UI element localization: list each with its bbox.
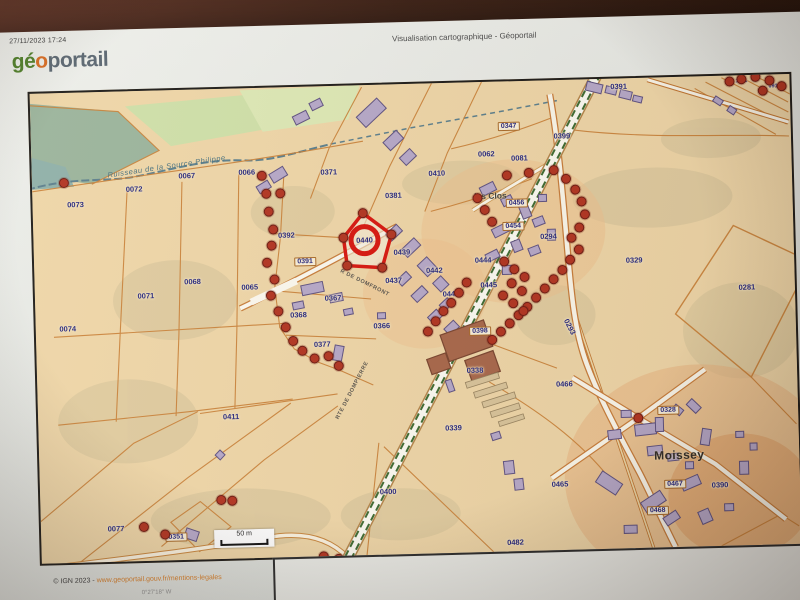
boundary-marker-dot xyxy=(262,258,272,268)
parcel-label-0338: 0338 xyxy=(467,366,484,375)
parcel-label-0081: 0081 xyxy=(511,153,528,162)
boundary-marker-dot xyxy=(517,286,527,296)
parcel-label-0392: 0392 xyxy=(278,230,295,239)
parcel-label-0339: 0339 xyxy=(445,423,462,432)
boundary-marker-dot xyxy=(565,255,575,265)
boundary-marker-dot xyxy=(509,264,519,274)
boundary-marker-dot xyxy=(480,205,490,215)
boundary-marker-dot xyxy=(508,298,518,308)
boundary-marker-dot xyxy=(269,274,279,284)
page-title: Visualisation cartographique - Géoportai… xyxy=(392,31,537,44)
boundary-marker-dot xyxy=(502,170,512,180)
boundary-marker-dot xyxy=(438,306,448,316)
logo-geo: géo xyxy=(11,49,47,73)
boundary-marker-dot xyxy=(423,326,433,336)
parcel-label-0367: 0367 xyxy=(325,293,342,302)
boundary-marker-dot xyxy=(281,322,291,332)
parcel-label-0377: 0377 xyxy=(314,340,331,349)
parcel-label-0391: 0391 xyxy=(610,82,627,91)
boundary-marker-dot xyxy=(777,81,787,91)
boundary-marker-dot xyxy=(257,171,267,181)
parcel-label-0371: 0371 xyxy=(320,167,337,176)
parcel-label-0467: 0467 xyxy=(664,479,686,489)
cadastral-map: 0073007200670066007100680065007400770351… xyxy=(28,72,800,566)
parcel-label-0067: 0067 xyxy=(178,171,195,180)
scale-bar-line xyxy=(220,539,268,546)
scale-bar: 50 m xyxy=(214,529,274,549)
scale-label: 50 m xyxy=(214,530,274,539)
boundary-marker-dot xyxy=(487,217,497,227)
boundary-marker-dot xyxy=(576,196,586,206)
parcel-label-0410: 0410 xyxy=(428,169,445,178)
parcel-label-0390: 0390 xyxy=(712,480,729,489)
boundary-marker-dot xyxy=(724,76,734,86)
boundary-marker-dot xyxy=(549,165,559,175)
map-label-layer: 0073007200670066007100680065007400770351… xyxy=(30,74,800,564)
boundary-marker-dot xyxy=(548,274,558,284)
parcel-label-0066: 0066 xyxy=(238,167,255,176)
parcel-label-0482: 0482 xyxy=(507,538,524,547)
boundary-marker-dot xyxy=(505,318,515,328)
geoportail-logo: géoportail xyxy=(11,48,108,75)
boundary-marker-dot xyxy=(275,188,285,198)
parcel-label-0347: 0347 xyxy=(498,122,520,132)
print-datetime: 27/11/2023 17:24 xyxy=(9,37,66,45)
boundary-marker-dot xyxy=(498,290,508,300)
boundary-marker-dot xyxy=(561,174,571,184)
boundary-marker-dot xyxy=(59,178,69,188)
parcel-label-0465: 0465 xyxy=(552,479,569,488)
boundary-marker-dot xyxy=(519,272,529,282)
parcel-label-0071: 0071 xyxy=(137,291,154,300)
parcel-label-0293: 0293 xyxy=(562,317,578,336)
boundary-marker-dot xyxy=(472,193,482,203)
boundary-marker-dot xyxy=(342,260,352,270)
parcel-label-0468: 0468 xyxy=(647,506,669,516)
boundary-marker-dot xyxy=(574,222,584,232)
boundary-marker-dot xyxy=(266,290,276,300)
boundary-marker-dot xyxy=(496,326,506,336)
boundary-marker-dot xyxy=(216,495,226,505)
street-label: Ruisseau de la Source Philippe xyxy=(107,153,226,180)
parcel-label-0329: 0329 xyxy=(626,255,643,264)
boundary-marker-dot xyxy=(431,316,441,326)
parcel-label-0437: 0437 xyxy=(385,276,402,285)
street-label: R DE DOMFRONT xyxy=(339,268,390,298)
parcel-label-0456: 0456 xyxy=(506,198,528,208)
boundary-marker-dot xyxy=(540,283,550,293)
legal-link: www.geoportail.gouv.fr/mentions-legales xyxy=(97,574,222,584)
boundary-marker-dot xyxy=(334,361,344,371)
boundary-marker-dot xyxy=(758,86,768,96)
parcel-label-0466: 0466 xyxy=(556,379,573,388)
parcel-label-0068: 0068 xyxy=(184,277,201,286)
boundary-marker-dot xyxy=(518,306,528,316)
parcel-label-0368: 0368 xyxy=(290,310,307,319)
boundary-marker-dot xyxy=(261,189,271,199)
boundary-marker-dot xyxy=(446,298,456,308)
copyright-line: © IGN 2023 - www.geoportail.gouv.fr/ment… xyxy=(53,574,222,585)
boundary-marker-dot xyxy=(268,224,278,234)
parcel-label-0400: 0400 xyxy=(380,487,397,496)
parcel-label-0077: 0077 xyxy=(108,524,125,533)
parcel-label-0399: 0399 xyxy=(553,131,570,140)
place-label-moissey: Moissey xyxy=(654,447,705,462)
boundary-marker-dot xyxy=(377,263,387,273)
logo-portail: portail xyxy=(47,48,108,73)
parcel-label-0454: 0454 xyxy=(502,221,524,231)
parcel-label-0366: 0366 xyxy=(373,321,390,330)
boundary-marker-dot xyxy=(264,207,274,217)
parcel-label-0065: 0065 xyxy=(241,282,258,291)
parcel-label-0391: 0391 xyxy=(294,257,316,267)
parcel-label-0444: 0444 xyxy=(475,255,492,264)
boundary-marker-dot xyxy=(524,168,534,178)
parcel-label-0074: 0074 xyxy=(59,324,76,333)
boundary-marker-dot xyxy=(570,184,580,194)
coords-partial: 0°27'18" W xyxy=(142,589,172,596)
boundary-marker-dot xyxy=(507,278,517,288)
parcel-label-0439: 0439 xyxy=(393,247,410,256)
boundary-marker-dot xyxy=(338,233,348,243)
boundary-marker-dot xyxy=(323,351,333,361)
parcel-label-0398: 0398 xyxy=(469,326,491,336)
boundary-marker-dot xyxy=(580,209,590,219)
boundary-marker-dot xyxy=(557,265,567,275)
boundary-marker-dot xyxy=(531,293,541,303)
parcel-label-0072: 0072 xyxy=(126,184,143,193)
boundary-marker-dot xyxy=(309,353,319,363)
parcel-label-0445: 0445 xyxy=(480,280,497,289)
boundary-marker-dot xyxy=(227,496,237,506)
parcel-label-0073: 0073 xyxy=(67,200,84,209)
boundary-marker-dot xyxy=(566,233,576,243)
parcel-label-0328: 0328 xyxy=(657,405,679,415)
boundary-marker-dot xyxy=(358,208,368,218)
parcel-label-0440: 0440 xyxy=(356,235,373,244)
boundary-marker-dot xyxy=(633,413,643,423)
photo-of-printed-map: 27/11/2023 17:24 Visualisation cartograp… xyxy=(0,0,800,600)
boundary-marker-dot xyxy=(454,288,464,298)
boundary-marker-dot xyxy=(288,336,298,346)
boundary-marker-dot xyxy=(487,335,497,345)
parcel-label-0381: 0381 xyxy=(385,191,402,200)
boundary-marker-dot xyxy=(267,240,277,250)
boundary-marker-dot xyxy=(273,306,283,316)
boundary-marker-dot xyxy=(574,244,584,254)
boundary-marker-dot xyxy=(297,346,307,356)
boundary-marker-dot xyxy=(139,522,149,532)
parcel-label-0062: 0062 xyxy=(478,149,495,158)
parcel-label-0281: 0281 xyxy=(738,282,755,291)
parcel-label-0442: 0442 xyxy=(426,266,443,275)
boundary-marker-dot xyxy=(499,256,509,266)
boundary-marker-dot xyxy=(386,229,396,239)
parcel-label-0411: 0411 xyxy=(223,412,240,421)
boundary-marker-dot xyxy=(462,277,472,287)
boundary-marker-dot xyxy=(750,72,760,82)
printed-page: 27/11/2023 17:24 Visualisation cartograp… xyxy=(0,10,800,600)
parcel-label-0294: 0294 xyxy=(540,232,557,241)
